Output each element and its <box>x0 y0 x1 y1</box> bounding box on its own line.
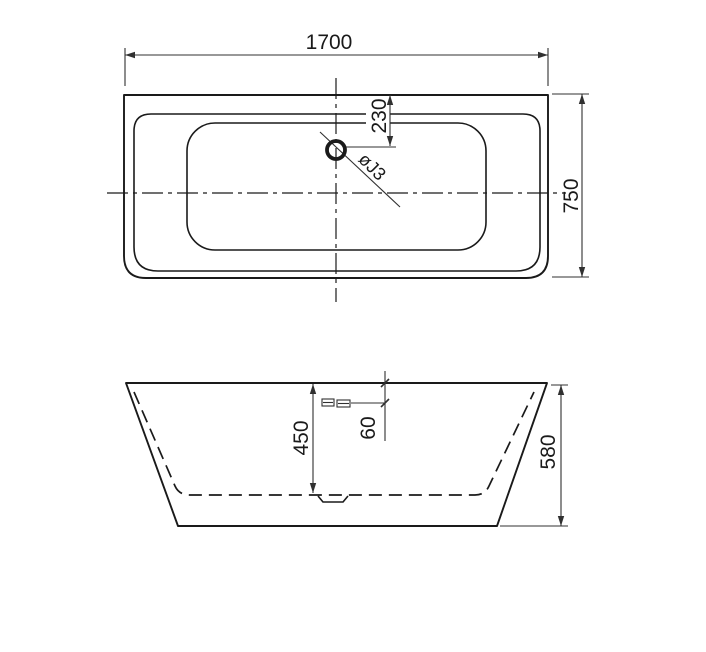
arrowhead-top <box>558 385 564 395</box>
dim-length-1700: 1700 <box>125 31 548 86</box>
dim-overflow-offset-60: 60 <box>351 371 389 441</box>
drain-recess-line <box>318 496 348 502</box>
dim-width-750: 750 <box>552 94 589 277</box>
front-view <box>126 383 547 526</box>
top-view <box>107 78 566 302</box>
dim-height-label: 580 <box>537 434 560 469</box>
dim-inner-depth-450: 450 <box>290 384 316 493</box>
dim-drain-offset-label: 230 <box>368 98 391 133</box>
arrowhead-bottom <box>558 516 564 526</box>
dim-inner-depth-label: 450 <box>290 420 313 455</box>
overflow-symbol <box>322 399 350 407</box>
arrowhead-bottom <box>310 483 316 493</box>
arrowhead-bottom <box>579 267 585 277</box>
dim-width-label: 750 <box>560 178 583 213</box>
arrowhead-top <box>579 94 585 104</box>
dim-height-580: 580 <box>500 385 568 526</box>
dim-overflow-offset-label: 60 <box>357 416 380 439</box>
dim-length-label: 1700 <box>306 31 353 54</box>
arrowhead-bottom <box>387 136 393 146</box>
arrowhead-top <box>310 384 316 394</box>
drawing-sheet: 1700 750 230 øJ3 <box>0 0 706 652</box>
arrowhead-left <box>125 52 135 58</box>
dim-drain-diameter-label: øJ3 <box>355 149 390 184</box>
bathtub-dimension-drawing: 1700 750 230 øJ3 <box>0 0 706 652</box>
dim-drain-offset-230: 230 <box>346 95 396 147</box>
tub-inner-hidden-line <box>134 392 534 495</box>
arrowhead-right <box>538 52 548 58</box>
